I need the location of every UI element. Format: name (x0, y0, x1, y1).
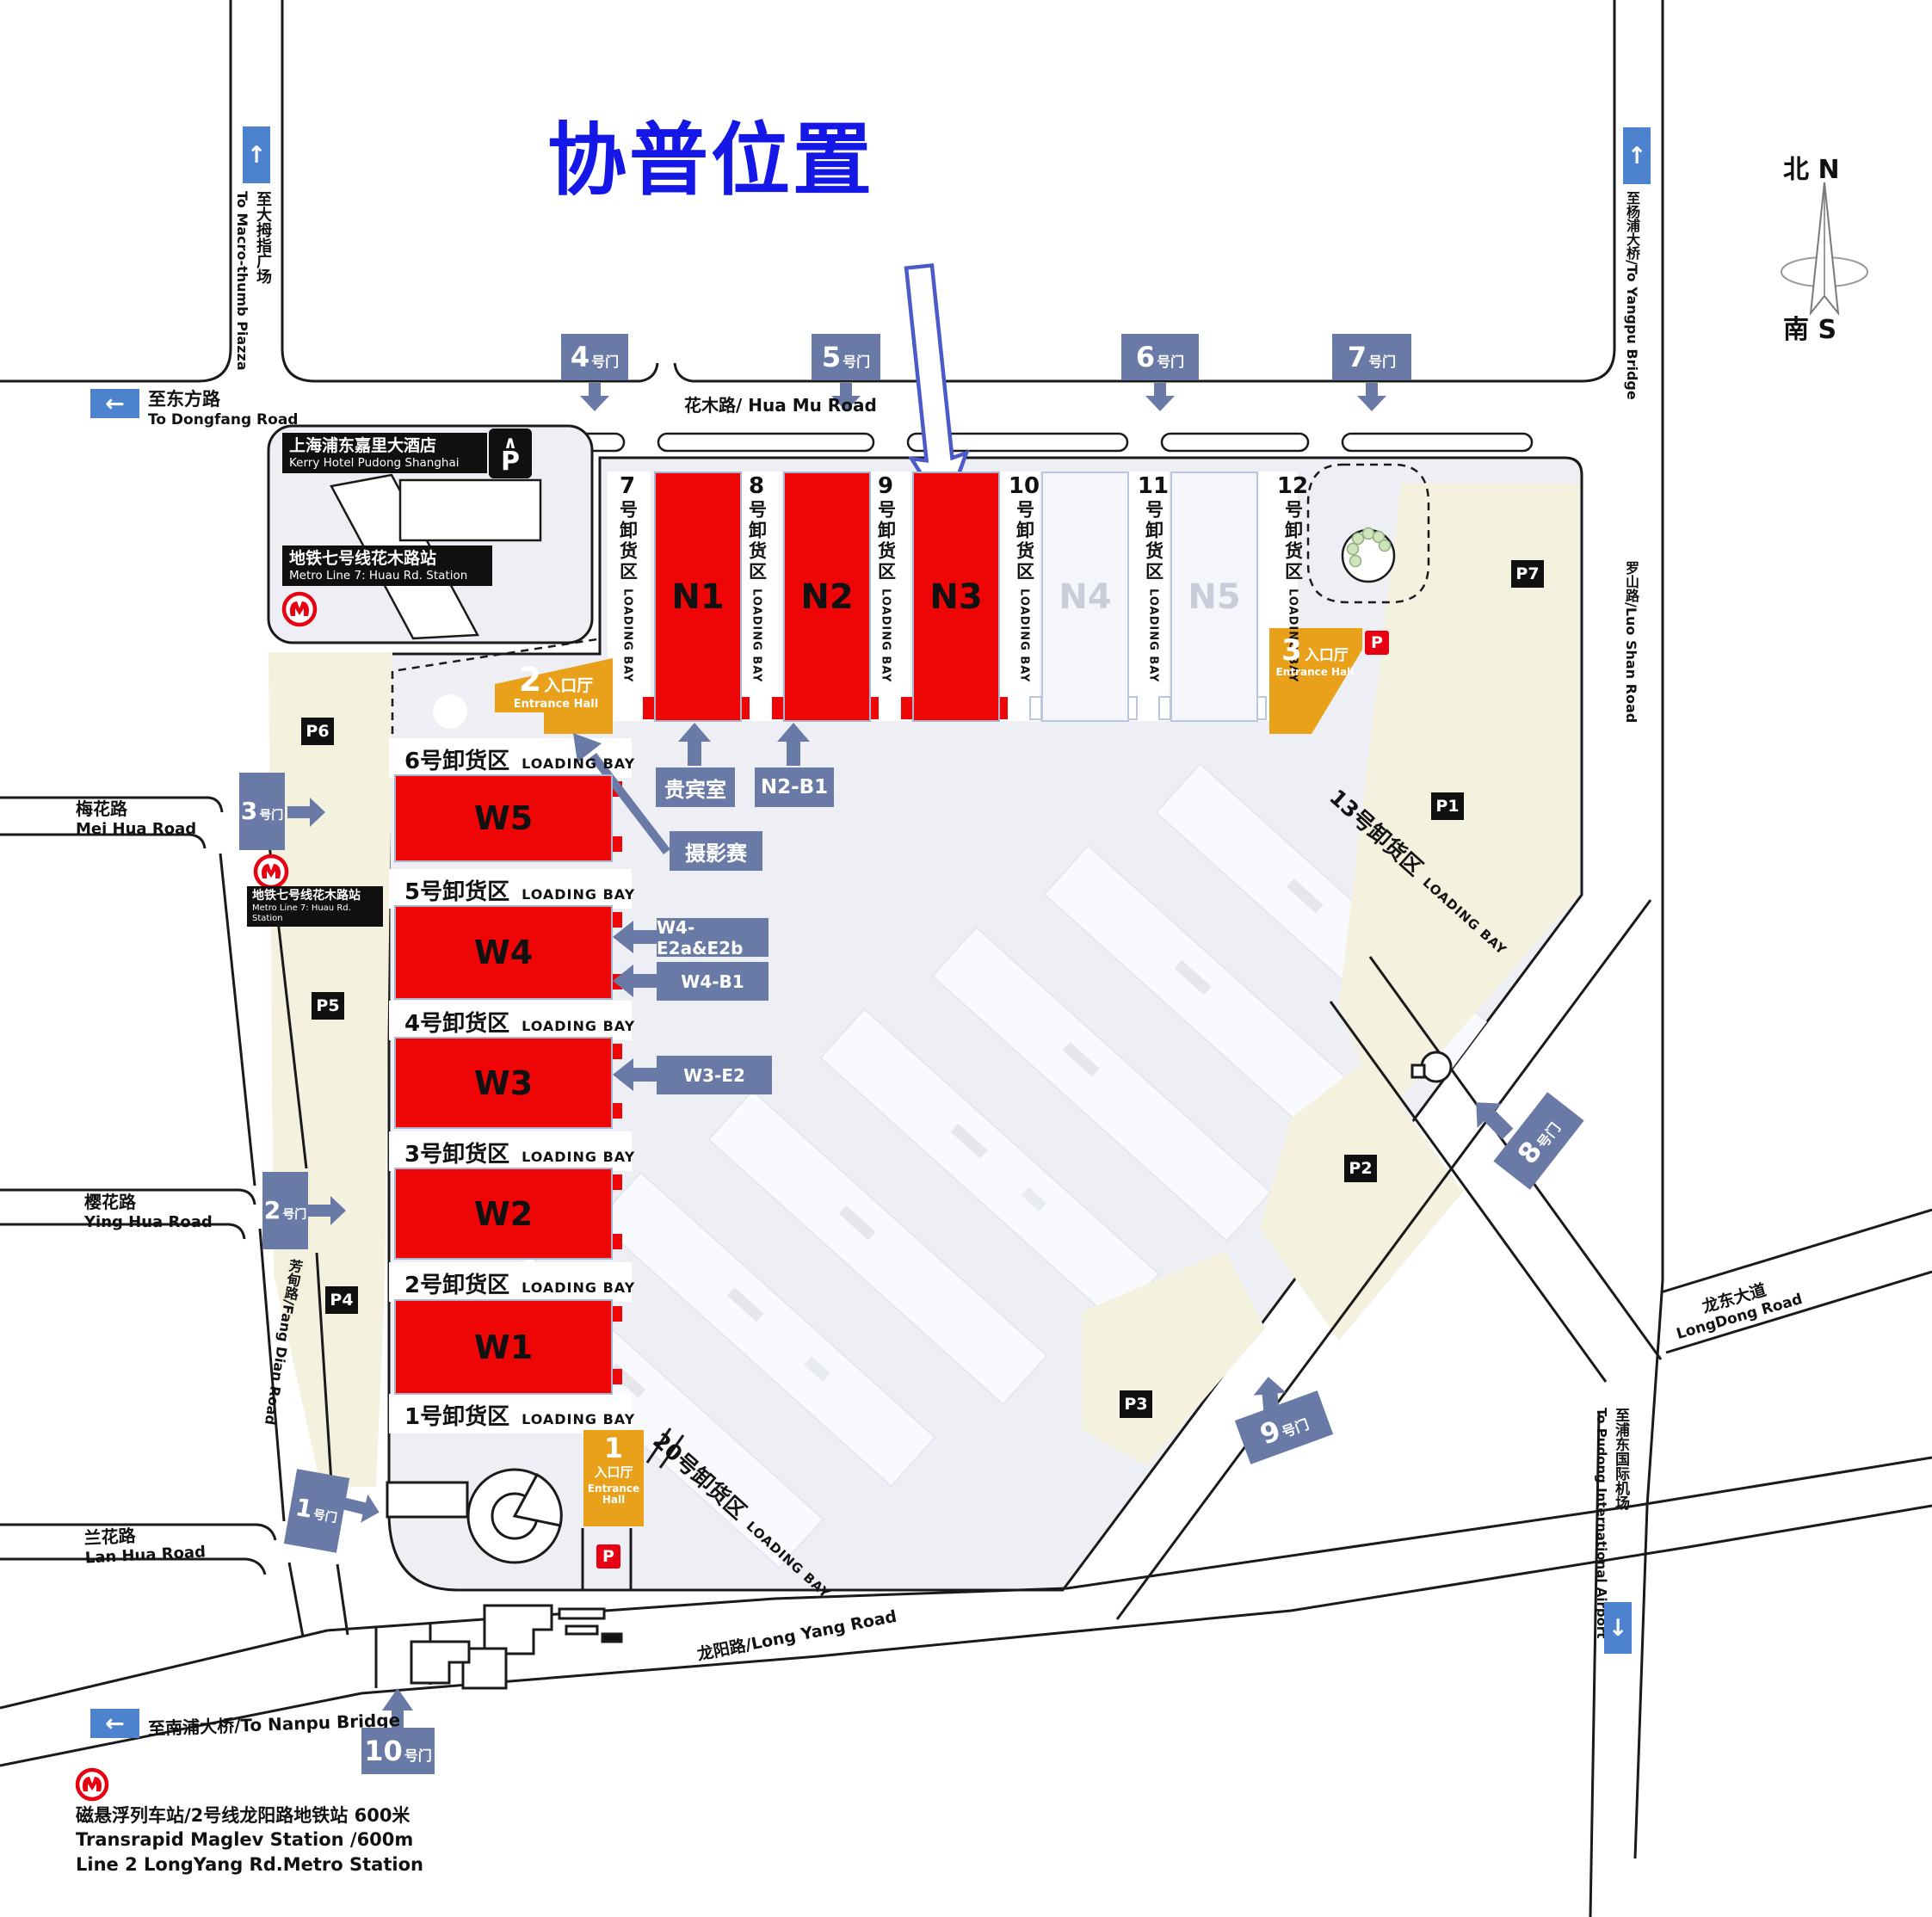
yinghua-cn: 樱花路 (84, 1188, 213, 1213)
entrance-1-cn: 入口厅 (583, 1465, 644, 1480)
metro7-cn-small: 地铁七号线花木路站 (252, 889, 378, 903)
lb7-cn: 号卸货区 (619, 500, 637, 582)
lb7-num: 7 (620, 475, 635, 497)
lb10-num: 10 (1009, 475, 1040, 497)
gate-2-num: 2 (264, 1199, 281, 1223)
lb1-cn: 1号卸货区 (404, 1399, 509, 1431)
lb3-cn: 3号卸货区 (404, 1137, 509, 1168)
loading-bay-5: 5号卸货区LOADING BAY (404, 874, 635, 906)
road-label-huamu: 花木路/ Hua Mu Road (684, 391, 877, 416)
lb10-cn: 号卸货区 (1015, 500, 1034, 582)
lb2-en: LOADING BAY (522, 1279, 635, 1296)
lb5-en: LOADING BAY (522, 886, 635, 903)
lb6-en: LOADING BAY (522, 755, 635, 772)
dongfang-arrow: ← (90, 389, 139, 418)
parking-p4: P4 (325, 1286, 358, 1314)
loading-bay-1: 1号卸货区LOADING BAY (404, 1399, 635, 1431)
lb8-num: 8 (749, 475, 764, 497)
entrance-3-num: 3 (1281, 635, 1302, 667)
map-graphics (0, 0, 1932, 1917)
road-macro-thumb (0, 0, 231, 381)
entrance-1-en: Entrance Hall (583, 1483, 644, 1506)
metro-line7-hotel-label: 地铁七号线花木路站 Metro Line 7: Huau Rd. Station (282, 546, 492, 586)
arrow-left-icon: ← (105, 392, 125, 416)
entrance-2-num: 2 (519, 663, 541, 699)
gate-5-suffix: 号门 (843, 355, 870, 369)
gate-3-num: 3 (241, 799, 257, 823)
airport-arrow: ↓ (1604, 1602, 1632, 1654)
entrance-2-cn: 入口厅 (544, 677, 593, 695)
lb5-cn: 5号卸货区 (404, 874, 509, 906)
loading-bay-10: 10号卸货区LOADING BAY (1009, 475, 1040, 682)
parking-p1: P1 (1431, 792, 1464, 820)
hall-n3: N3 (912, 472, 1000, 722)
loading-bay-2: 2号卸货区LOADING BAY (404, 1267, 635, 1299)
gate-7: 7号门 (1332, 334, 1411, 380)
bus-bays (465, 434, 1532, 451)
lb11-en: LOADING BAY (1148, 589, 1159, 682)
parking-p-letter: P (501, 450, 520, 473)
lb8-en: LOADING BAY (751, 589, 762, 682)
gate-1-num: 1 (293, 1495, 314, 1522)
parking-p3: P3 (1120, 1390, 1152, 1418)
meihua-en: Mei Hua Road (76, 820, 196, 839)
lb8-cn: 号卸货区 (748, 500, 766, 582)
loading-bay-9: 9号卸货区LOADING BAY (870, 475, 901, 682)
parking-p7: P7 (1511, 560, 1544, 588)
lb6-cn: 6号卸货区 (404, 743, 509, 775)
maglev-station-label: 磁悬浮列车站/2号线龙阳路地铁站 600米 Transrapid Maglev … (76, 1803, 423, 1877)
lb10-en: LOADING BAY (1019, 589, 1030, 682)
gate-5-num: 5 (822, 343, 841, 371)
loading-bay-3: 3号卸货区LOADING BAY (404, 1137, 635, 1168)
hall-n5: N5 (1170, 472, 1258, 722)
parking-p2: P2 (1344, 1155, 1377, 1182)
gate-6: 6号门 (1121, 334, 1199, 380)
kerry-hotel-label: 上海浦东嘉里大酒店 Kerry Hotel Pudong Shanghai (282, 433, 487, 473)
compass-needle-icon (1781, 182, 1867, 313)
parking-garage-icon: ∧ P (489, 428, 532, 478)
gate-6-num: 6 (1136, 343, 1155, 371)
gate-5: 5号门 (812, 334, 880, 380)
gate-7-suffix: 号门 (1368, 355, 1396, 369)
dongfang-cn: 至东方路 (148, 385, 298, 411)
yinghua-en: Ying Hua Road (84, 1213, 213, 1232)
parking-p6: P6 (301, 718, 334, 745)
gate-4-arrow-icon (580, 383, 609, 411)
gate-1-suffix: 号门 (312, 1508, 338, 1525)
hall-w1: W1 (394, 1299, 613, 1395)
metro7-en-small: Metro Line 7: Huau Rd. Station (252, 903, 378, 924)
compass-north-label: 北 N (1783, 148, 1840, 186)
maglev-line1: 磁悬浮列车站/2号线龙阳路地铁站 600米 (76, 1803, 423, 1828)
kerry-cn: 上海浦东嘉里大酒店 (289, 436, 480, 456)
entrance-1-label: 1 入口厅 Entrance Hall (583, 1433, 644, 1506)
metro7-en: Metro Line 7: Huau Rd. Station (289, 569, 485, 582)
loading-bay-6: 6号卸货区LOADING BAY (404, 743, 635, 775)
lb11-cn: 号卸货区 (1145, 500, 1163, 582)
entrance-3-en: Entrance Hall (1272, 667, 1358, 678)
hall-w2: W2 (394, 1168, 613, 1260)
gate-6-suffix: 号门 (1157, 355, 1184, 369)
loading-bay-7: 7号卸货区LOADING BAY (612, 475, 643, 682)
hall-w5: W5 (394, 774, 613, 862)
loading-bay-11: 11号卸货区LOADING BAY (1138, 475, 1169, 682)
arrow-down-icon: ↓ (1608, 1617, 1628, 1640)
gate-2: 2号门 (262, 1172, 308, 1249)
callout-n2-b1: N2-B1 (755, 767, 834, 807)
macro-thumb-arrow: ↑ (243, 126, 270, 183)
nanpu-arrow: ← (90, 1709, 139, 1738)
entrance-3-cn: 入口厅 (1305, 648, 1349, 664)
arrow-up-icon: ↑ (247, 144, 267, 167)
gate-7-arrow-icon (1357, 383, 1386, 411)
callout-vip-room: 贵宾室 (656, 767, 735, 807)
metro-line7-gate3-label: 地铁七号线花木路站 Metro Line 7: Huau Rd. Station (247, 886, 383, 927)
gate-4-suffix: 号门 (591, 355, 619, 369)
gate-6-arrow-icon (1145, 383, 1175, 411)
callout-w4-b1: W4-B1 (657, 962, 768, 1001)
entrance-3-label: 3入口厅 Entrance Hall (1272, 635, 1358, 679)
lb9-en: LOADING BAY (880, 589, 892, 682)
entrance-2-label: 2入口厅 Entrance Hall (503, 663, 608, 711)
macro-thumb-en: To Macro-thumb Piazza (234, 191, 250, 371)
lb3-en: LOADING BAY (522, 1149, 635, 1165)
sniec-venue-map: 协普位置 北 N 南 S ↑ To Macro-thumb Piazza 至大拇… (0, 0, 1932, 1917)
gate-10-suffix: 号门 (404, 1749, 432, 1763)
lb12-num: 12 (1277, 475, 1308, 497)
callout-photo-contest: 摄影赛 (670, 831, 762, 871)
gate-3-suffix: 号门 (259, 810, 283, 822)
yangpu-sign: 至杨浦大桥/To Yangpu Bridge (1621, 191, 1642, 400)
gate-4-num: 4 (571, 343, 589, 371)
macro-thumb-sign: To Macro-thumb Piazza 至大拇指广场 (234, 191, 274, 371)
lb11-num: 11 (1138, 475, 1169, 497)
parking-p5: P5 (312, 992, 344, 1020)
entrance-1-num: 1 (583, 1433, 644, 1464)
dongfang-en: To Dongfang Road (148, 411, 298, 428)
lb1-en: LOADING BAY (522, 1411, 635, 1427)
gate-10-num: 10 (364, 1737, 403, 1765)
dongfang-sign: 至东方路 To Dongfang Road (148, 385, 298, 428)
lb12-cn: 号卸货区 (1284, 500, 1302, 582)
lb9-num: 9 (878, 475, 893, 497)
callout-w4-e2a-e2b: W4-E2a&E2b (657, 918, 768, 957)
metro7-cn: 地铁七号线花木路站 (289, 549, 485, 569)
lb2-cn: 2号卸货区 (404, 1267, 509, 1299)
kerry-en: Kerry Hotel Pudong Shanghai (289, 456, 480, 470)
gate-7-num: 7 (1348, 343, 1367, 371)
yangpu-arrow: ↑ (1623, 127, 1651, 184)
lb4-en: LOADING BAY (522, 1018, 635, 1034)
road-label-meihua: 梅花路 Mei Hua Road (76, 795, 196, 839)
road-label-lanhua: 兰花路 Lan Hua Road (83, 1518, 207, 1568)
page-title: 协普位置 (547, 96, 874, 211)
entrance-2-en: Entrance Hall (503, 699, 608, 711)
road-label-luoshan: 罗山路/Luo Shan Road (1620, 561, 1641, 723)
gate-4: 4号门 (561, 334, 628, 380)
gate-9-suffix: 号门 (1281, 1417, 1312, 1439)
gate-8-suffix: 号门 (1535, 1120, 1563, 1150)
lb7-en: LOADING BAY (622, 589, 633, 682)
meihua-cn: 梅花路 (76, 795, 196, 820)
gate-2-suffix: 号门 (282, 1209, 306, 1221)
lb9-cn: 号卸货区 (877, 500, 895, 582)
parking-icon-entrance1: P (596, 1544, 620, 1569)
maglev-line3: Line 2 LongYang Rd.Metro Station (76, 1852, 423, 1877)
gate-9-num: 9 (1256, 1416, 1284, 1449)
road-label-yinghua: 樱花路 Ying Hua Road (84, 1188, 213, 1232)
maglev-line2: Transrapid Maglev Station /600m (76, 1828, 423, 1852)
hall-w4: W4 (394, 905, 613, 1000)
hall-n4: N4 (1041, 472, 1129, 722)
callout-w3-e2: W3-E2 (657, 1056, 772, 1094)
arrow-left-icon: ← (105, 1712, 125, 1735)
gate-3: 3号门 (239, 773, 285, 850)
arrow-up-icon: ↑ (1627, 145, 1647, 168)
hall-w3: W3 (394, 1037, 613, 1129)
loading-bay-4: 4号卸货区LOADING BAY (404, 1006, 635, 1038)
macro-thumb-cn: 至大拇指广场 (251, 191, 274, 371)
loading-bay-8: 8号卸货区LOADING BAY (741, 475, 772, 682)
hall-n2: N2 (783, 472, 871, 722)
gate-10: 10号门 (361, 1728, 435, 1774)
compass-south-label: 南 S (1783, 308, 1836, 346)
hall-n1: N1 (654, 472, 742, 722)
parking-icon-entrance3: P (1365, 631, 1389, 655)
lb4-cn: 4号卸货区 (404, 1006, 509, 1038)
